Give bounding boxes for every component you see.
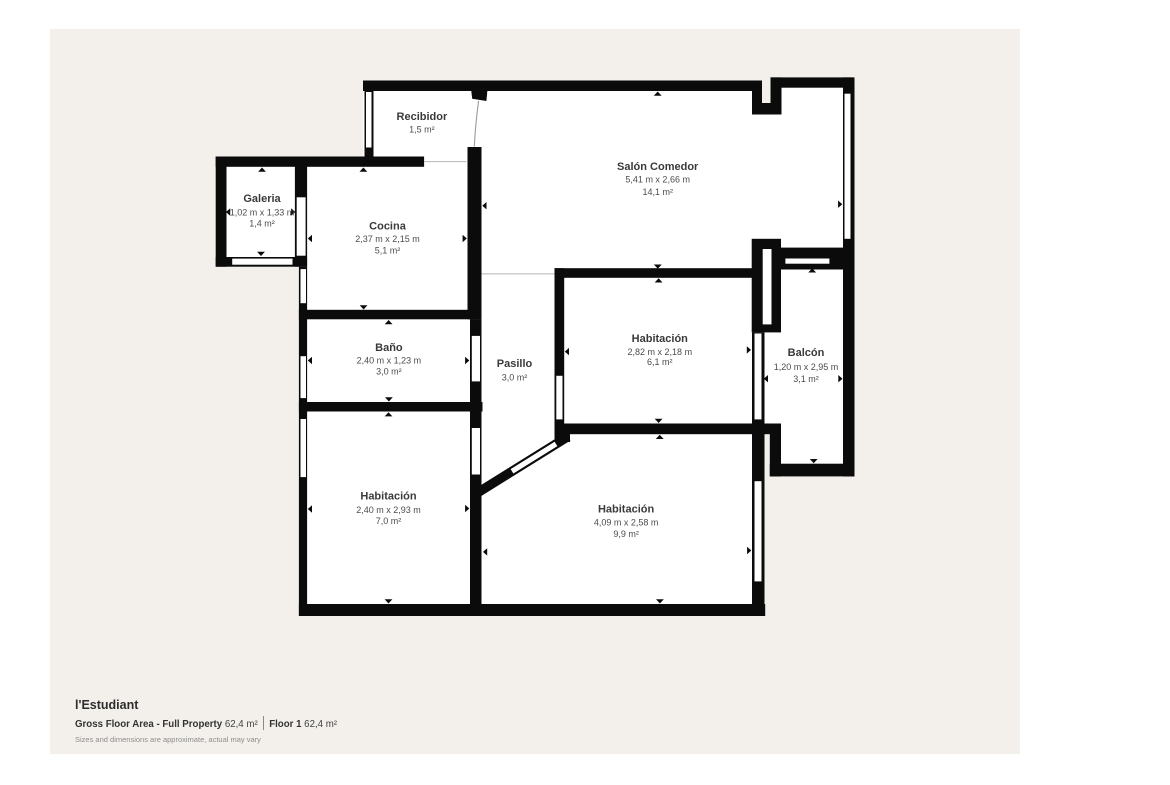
svg-text:Habitación: Habitación [598,503,655,515]
svg-text:2,40 m x 2,93 m: 2,40 m x 2,93 m [356,505,421,515]
svg-text:Salón Comedor: Salón Comedor [617,161,699,173]
svg-text:5,41 m x 2,66 m: 5,41 m x 2,66 m [625,175,690,185]
svg-text:1,4 m²: 1,4 m² [249,219,275,229]
svg-text:1,5 m²: 1,5 m² [409,125,435,135]
svg-text:Baño: Baño [375,342,403,354]
svg-text:14,1 m²: 14,1 m² [642,187,673,197]
svg-text:1,02 m x 1,33 m: 1,02 m x 1,33 m [230,207,295,217]
svg-text:Pasillo: Pasillo [497,358,533,370]
svg-text:3,0 m²: 3,0 m² [376,367,402,377]
svg-text:4,09 m x 2,58 m: 4,09 m x 2,58 m [594,518,659,528]
svg-text:2,40 m x 1,23 m: 2,40 m x 1,23 m [357,356,422,366]
svg-text:7,0 m²: 7,0 m² [376,516,402,526]
svg-text:6,1 m²: 6,1 m² [647,357,673,367]
svg-text:3,1 m²: 3,1 m² [793,374,819,384]
svg-text:5,1 m²: 5,1 m² [375,246,401,256]
svg-text:Habitación: Habitación [360,491,417,503]
svg-text:Cocina: Cocina [369,220,407,232]
svg-text:2,37 m x 2,15 m: 2,37 m x 2,15 m [355,234,420,244]
svg-text:Galeria: Galeria [243,193,281,205]
svg-text:Habitación: Habitación [632,333,689,345]
svg-text:1,20 m x 2,95 m: 1,20 m x 2,95 m [774,362,839,372]
svg-text:Recibidor: Recibidor [397,111,448,123]
svg-text:3,0 m²: 3,0 m² [502,372,528,382]
svg-text:2,82 m x 2,18 m: 2,82 m x 2,18 m [628,347,693,357]
svg-text:Balcón: Balcón [788,347,825,359]
svg-text:9,9 m²: 9,9 m² [613,529,639,539]
